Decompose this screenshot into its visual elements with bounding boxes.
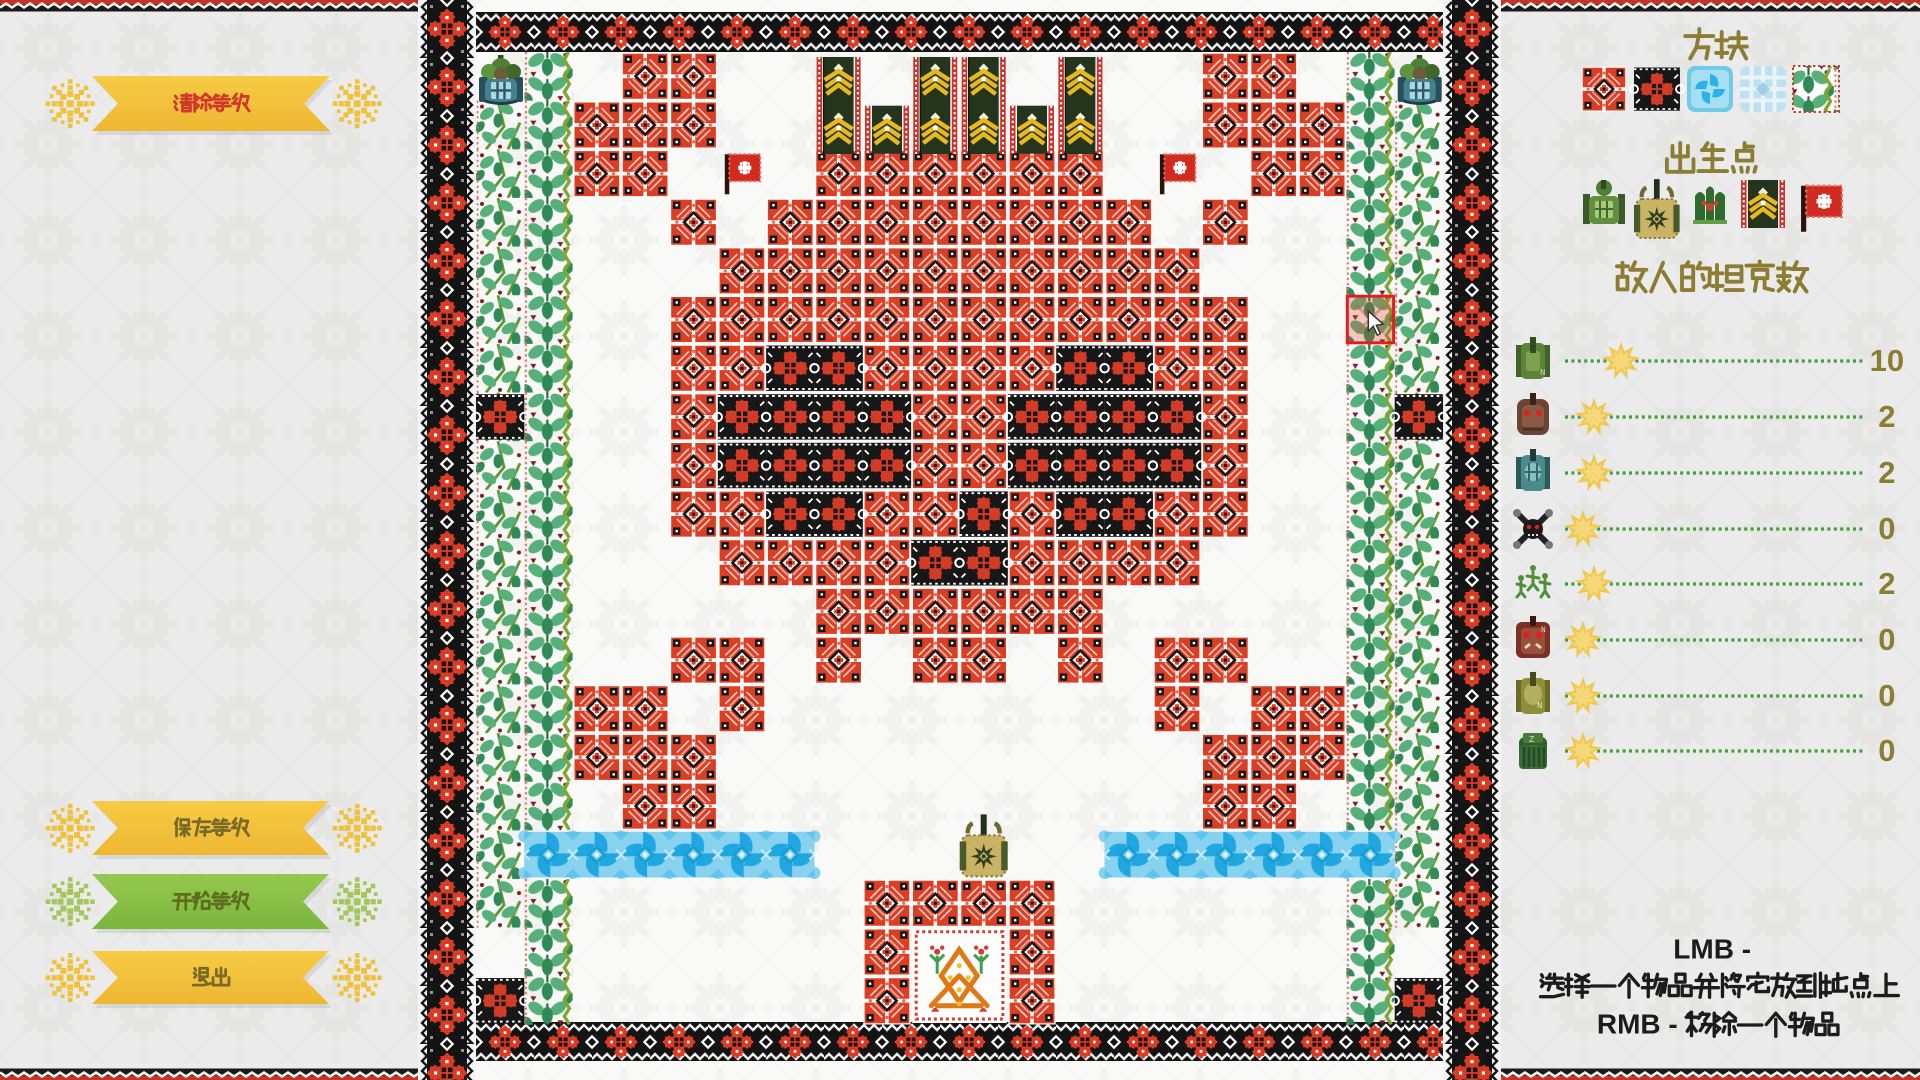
svg-text:N: N	[1540, 368, 1545, 378]
svg-text:0: 0	[1878, 733, 1895, 768]
svg-text:LMB -: LMB -	[1673, 933, 1751, 964]
svg-text:Z: Z	[1529, 735, 1535, 745]
svg-text:N: N	[1541, 626, 1546, 635]
svg-text:N: N	[1537, 701, 1542, 711]
svg-text:2: 2	[1878, 455, 1895, 490]
svg-text:0: 0	[1878, 622, 1895, 657]
svg-text:10: 10	[1870, 343, 1904, 378]
svg-text:2: 2	[1878, 399, 1895, 434]
svg-text:2: 2	[1878, 566, 1895, 601]
svg-text:0: 0	[1878, 678, 1895, 713]
svg-text:0: 0	[1878, 511, 1895, 546]
svg-text:RMB -: RMB -	[1597, 1008, 1678, 1039]
